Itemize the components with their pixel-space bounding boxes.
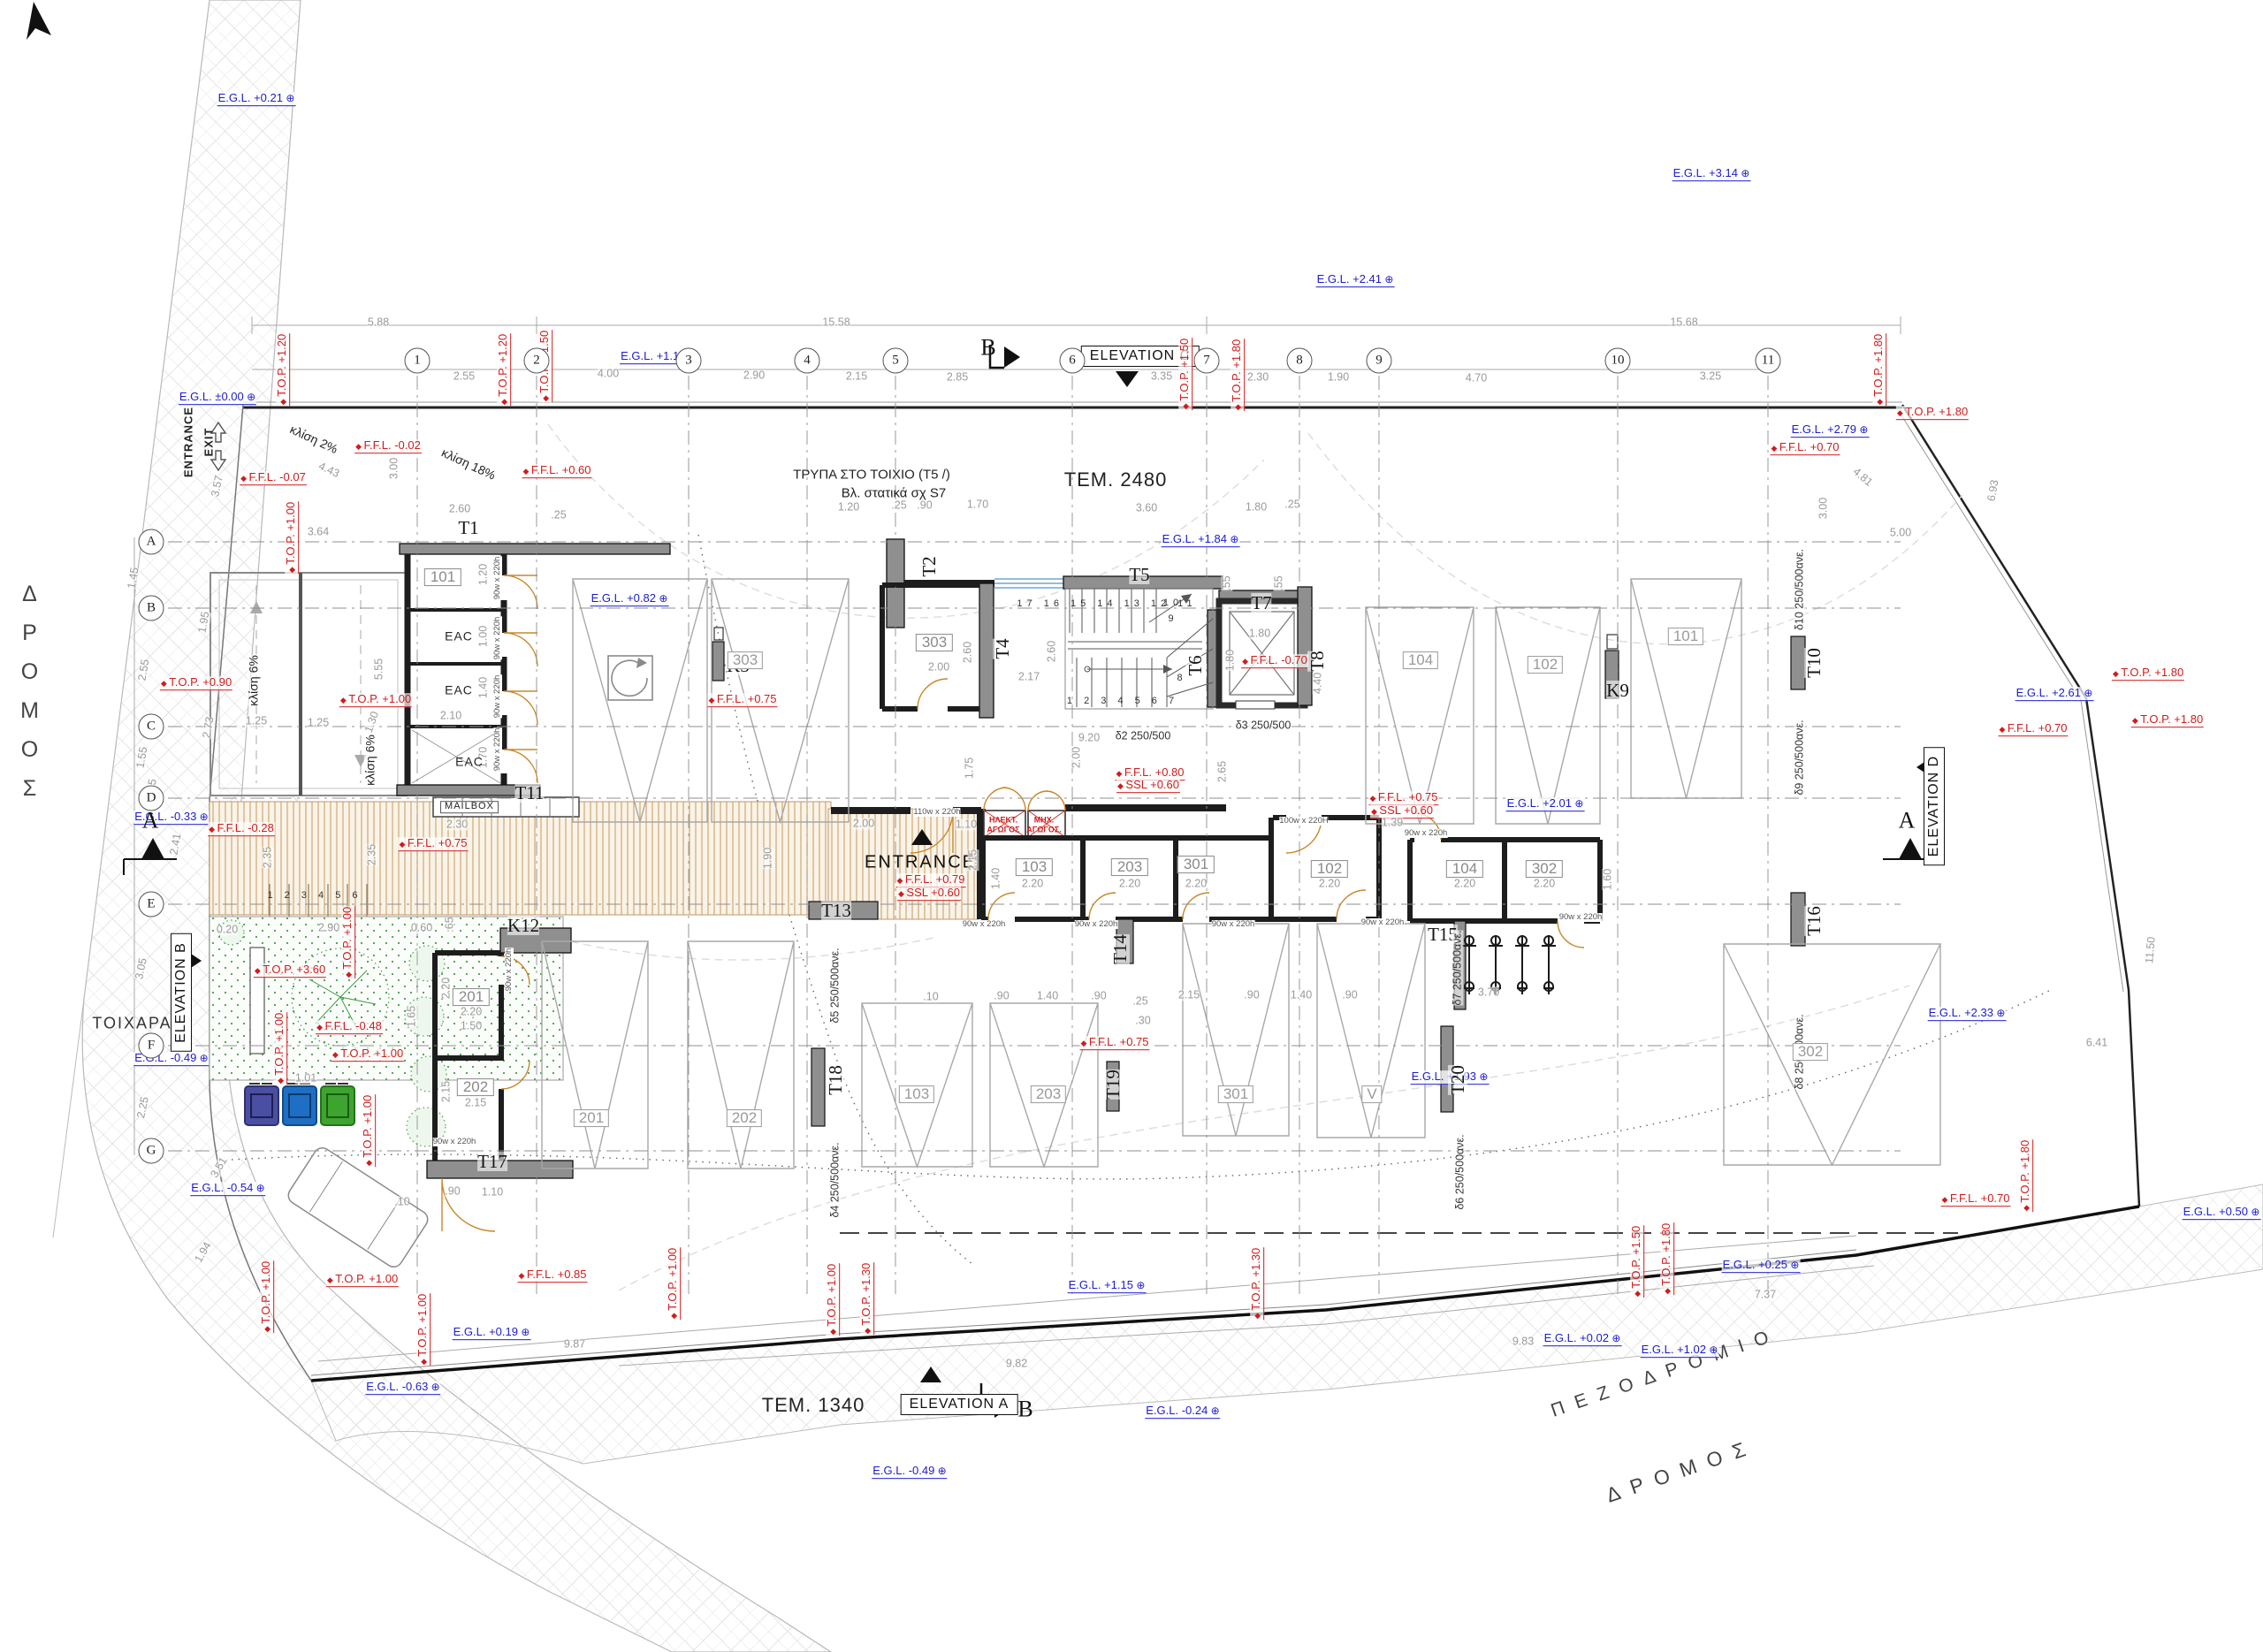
dimension-label: 15.68: [1670, 316, 1697, 328]
exit-vertical-label: EXIT: [202, 428, 216, 457]
beam-label: δ9 250/500ανε.: [1794, 719, 1805, 795]
wall-column-label: T18: [826, 1065, 845, 1095]
door-size-label: 90w x 220h: [1075, 920, 1118, 929]
step-numbers: 8: [1177, 674, 1186, 684]
parking-number: 303: [728, 651, 763, 669]
egl-level-label: E.G.L. +1.02: [1641, 1344, 1719, 1358]
door-size-label: 90w x 220h: [963, 920, 1006, 929]
beam-label: δ3 250/500: [1236, 719, 1292, 731]
door-size-label: 90w x 220h: [505, 948, 514, 992]
dimension-label: 4.40: [1312, 673, 1323, 694]
level-label: T.O.P. +1.00: [826, 1263, 840, 1336]
grid-column-bubble: 8: [1287, 348, 1313, 374]
dimension-label: 2.20: [1319, 878, 1340, 889]
level-label: F.F.L. -0.02: [354, 439, 422, 453]
beam-label: δ2 250/500: [1116, 730, 1171, 742]
egl-level-label: E.G.L. +0.21: [217, 92, 296, 106]
dimension-label: 3.64: [308, 526, 329, 537]
turning-icon: [608, 656, 652, 700]
egl-level-label: E.G.L. -0.63: [365, 1381, 440, 1395]
level-label: T.O.P. +1.80: [2131, 713, 2204, 727]
room-number: 101: [424, 568, 461, 586]
dimension-label: 1.90: [1328, 371, 1349, 383]
dimension-label: 1.50: [461, 1020, 482, 1032]
duct-label: ΑΓΩΓΟΣ: [987, 826, 1020, 834]
level-label: T.O.P. +0.90: [160, 676, 232, 690]
step-numbers: 9: [1168, 614, 1177, 625]
egl-level-label: E.G.L. +0.82: [591, 592, 669, 606]
dimension-label: .25: [891, 499, 906, 511]
level-label: F.F.L. +0.60: [522, 464, 592, 478]
door-size-label: 100w x 220H: [1279, 817, 1328, 826]
dimension-label: 4.70: [1466, 372, 1487, 384]
dimension-label: .10: [923, 991, 938, 1002]
level-label: T.O.P. +1.00: [339, 693, 412, 707]
dimension-label: 3.70: [1478, 986, 1499, 998]
egl-level-label: E.G.L. +2.41: [1316, 273, 1395, 287]
dimension-label: 2.00: [853, 818, 874, 829]
dimension-label: 2.15: [1178, 989, 1200, 1001]
grid-row-bubble: A: [139, 529, 164, 555]
parking-space: [1183, 924, 1289, 1136]
door-size-label: 90w x 220h: [1212, 920, 1255, 929]
level-label: SSL +0.60: [897, 887, 961, 901]
dimension-label: 2.85: [947, 371, 968, 383]
dimension-label: 1.65: [406, 1006, 417, 1027]
dimension-label: 9.83: [1512, 1336, 1534, 1347]
wall-column-label: T20: [1448, 1065, 1467, 1095]
egl-level-label: E.G.L. +1.84: [1162, 533, 1240, 547]
parking-number: 102: [1528, 656, 1563, 674]
dimension-label: .25: [1284, 499, 1299, 510]
dimension-label: 6.41: [2086, 1037, 2107, 1048]
eac-room-label: EAC: [445, 684, 473, 697]
wall-column-label: T11: [514, 783, 544, 803]
north-arrow: [27, 2, 51, 40]
dimension-label: 3.35: [1151, 370, 1172, 382]
duct-label: ΗΛΕΚΤ.: [989, 816, 1017, 824]
level-label: T.O.P. +1.00: [667, 1247, 681, 1320]
section-letter: B: [980, 335, 995, 359]
dimension-label: 3.25: [1700, 370, 1721, 382]
egl-level-label: E.G.L. +0.02: [1543, 1332, 1622, 1346]
dimension-label: 1.90: [762, 848, 773, 869]
dimension-label: 0.60: [411, 922, 432, 933]
door-size-label: 90w x 220h: [493, 675, 502, 719]
dimension-label: .90: [917, 499, 932, 511]
level-label: T.O.P. +3.60: [254, 963, 326, 978]
dimension-label: 4.00: [598, 368, 619, 379]
level-label: F.F.L. +0.85: [518, 1268, 588, 1283]
grid-row-bubble: D: [139, 786, 164, 811]
parking-number: 104: [1403, 651, 1438, 669]
dimension-label: 11.50: [2144, 936, 2158, 963]
dimension-label: 2.17: [1018, 671, 1040, 682]
dimension-label: 1.80: [1249, 628, 1270, 639]
room-number: 202: [457, 1078, 494, 1096]
dimension-label: 2.60: [449, 503, 470, 514]
level-label: F.F.L. +0.70: [1771, 441, 1840, 455]
plot-number-bottom: ΤΕΜ. 1340: [762, 1394, 865, 1417]
wall-column-label: T5: [1129, 565, 1149, 584]
level-label: F.F.L. -0.70: [1241, 654, 1308, 668]
level-label: T.O.P. +1.20: [276, 333, 290, 406]
door-size-label: 90w x 220h: [433, 1138, 476, 1146]
dimension-label: .30: [1135, 1015, 1150, 1026]
dimension-label: 2.35: [366, 844, 377, 865]
duct-label: ΜΗΧ.: [1034, 816, 1055, 824]
waste-bins: [245, 1084, 354, 1125]
dimension-label: 2.15: [440, 1081, 452, 1102]
level-label: F.F.L. +0.75: [708, 693, 778, 707]
dimension-label: .90: [1091, 990, 1106, 1001]
room-number: 302: [1526, 860, 1563, 878]
grid-column-bubble: 4: [795, 348, 820, 374]
beam-label: δ6 250/500ανε.: [1454, 1134, 1466, 1209]
step-numbers: 1 2 3 4 5 6 7: [1067, 697, 1178, 707]
dimension-label: 9.20: [1078, 732, 1100, 743]
wall-column-label: T8: [1307, 651, 1327, 671]
mailbox-label: MAILBOX: [440, 801, 499, 813]
dimension-label: .10: [394, 1196, 409, 1207]
door-size-label: 90w x 220h: [493, 728, 502, 772]
egl-level-label: E.G.L. +2.79: [1791, 423, 1870, 438]
egl-level-label: E.G.L. -0.54: [190, 1182, 265, 1196]
level-label: T.O.P. +1.50: [1630, 1225, 1644, 1298]
room-number: 102: [1311, 860, 1348, 878]
egl-level-label: E.G.L. +3.14: [1672, 167, 1751, 181]
dimension-label: .25: [1132, 995, 1147, 1007]
parking-number: 103: [899, 1085, 934, 1103]
dimension-label: 1.10: [482, 1186, 503, 1198]
dimension-label: 1.01: [295, 1072, 316, 1084]
room-number: 104: [1446, 860, 1483, 878]
level-label: F.F.L. +0.75: [1080, 1036, 1150, 1050]
dimension-label: 2.20: [440, 978, 452, 999]
grid-column-bubble: 11: [1756, 348, 1781, 374]
level-label: T.O.P. +1.80: [2112, 666, 2184, 681]
dimension-label: 2.90: [743, 369, 765, 381]
dimension-label: 2.10: [440, 710, 461, 721]
door-size-label: 90w x 220h: [493, 617, 502, 660]
dimension-label: 2.60: [1046, 641, 1057, 662]
dimension-label: 1.70: [967, 499, 988, 510]
grid-row-bubble: F: [139, 1033, 164, 1059]
wall-column-label: T10: [1804, 648, 1824, 678]
dimension-label: 1.40: [990, 868, 1002, 889]
egl-level-label: E.G.L. +2.01: [1506, 797, 1585, 811]
dimension-label: 3.00: [388, 458, 400, 479]
dimension-label: 9.87: [564, 1338, 585, 1350]
grid-column-bubble: 6: [1060, 348, 1086, 374]
grid-column-bubble: 10: [1605, 348, 1631, 374]
grid-row-bubble: B: [139, 596, 164, 621]
dimension-label: .90: [1342, 989, 1357, 1001]
level-label: T.O.P. +1.20: [497, 333, 511, 406]
wall-column-label: K12: [507, 916, 539, 935]
beam-label: δ5 250/500ανε.: [829, 948, 841, 1023]
dimension-label: 2.15: [846, 370, 867, 382]
egl-level-label: E.G.L. ±0.00: [179, 391, 256, 405]
dimension-label: 2.00: [1071, 747, 1082, 768]
level-label: F.F.L. +0.75: [399, 837, 469, 851]
door-size-label: 90w x 220h: [1405, 829, 1448, 838]
dimension-label: 2.90: [318, 922, 339, 933]
eac-room-label: EAC: [445, 630, 473, 643]
dimension-label: 1.25: [246, 715, 267, 727]
section-letter: A: [1899, 808, 1916, 832]
egl-level-label: E.G.L. +0.50: [2183, 1206, 2261, 1220]
room-number: 201: [453, 988, 490, 1006]
dimension-label: 2.30: [1247, 371, 1269, 383]
dimension-label: 1.20: [477, 564, 489, 585]
level-label: T.O.P. +1.00: [341, 906, 355, 978]
dimension-label: 7.37: [1755, 1289, 1776, 1300]
parking-number: 301: [1218, 1085, 1253, 1103]
level-label: T.O.P. +1.00: [416, 1293, 431, 1366]
dimension-label: .25: [551, 509, 566, 521]
dimension-label: 5.00: [1890, 527, 1911, 538]
dimension-label: .90: [1244, 989, 1259, 1001]
dimension-label: 2.15: [465, 1097, 486, 1108]
dimension-label: 2.20: [1185, 878, 1207, 889]
level-label: T.O.P. +1.00: [326, 1273, 399, 1287]
dimension-label: 2.20: [1454, 878, 1475, 889]
level-label: T.O.P. +1.80: [1660, 1222, 1674, 1295]
dimension-label: 2.20: [1119, 878, 1140, 889]
egl-level-label: E.G.L. +0.19: [453, 1326, 531, 1340]
parking-number: 203: [1031, 1085, 1066, 1103]
grid-row-bubble: G: [139, 1138, 164, 1164]
dimension-label: .90: [445, 1185, 460, 1197]
parking-number: 302: [1793, 1043, 1828, 1061]
wall-column-label: T17: [477, 1152, 507, 1171]
dimension-label: .65: [444, 917, 455, 932]
level-label: T.O.P. +1.80: [1896, 406, 1969, 420]
duct-label: ΑΓΩΓΟΣ.: [1026, 826, 1061, 834]
beam-label: δ4 250/500ανε.: [829, 1142, 841, 1217]
parking-number: 202: [727, 1109, 762, 1127]
floor-plan-sheet: ΤΕΜ. 2480 ΤΕΜ. 1340 ΔΡΟΜΟΣ ΠΕΖΟΔΡΟΜΙΟ ΔΡ…: [0, 0, 2263, 1652]
elevation-b-label: ELEVATION B: [171, 933, 192, 1052]
road-label-left: ΔΡΟΜΟΣ: [17, 582, 42, 815]
grid-column-bubble: 1: [405, 348, 431, 374]
parking-number: 101: [1668, 628, 1703, 645]
level-label: T.O.P. +1.50: [1178, 338, 1192, 410]
dimension-label: .90: [994, 990, 1009, 1001]
parking-space: [1631, 579, 1741, 798]
room-number: 103: [1016, 858, 1053, 876]
grid-row-bubble: C: [139, 714, 164, 740]
wall-column-label: T16: [1804, 906, 1824, 936]
parking-space: [1724, 944, 1940, 1165]
dimension-label: 1.80: [1246, 501, 1267, 513]
elevation-d-label: ELEVATION D: [1924, 747, 1945, 865]
wall-column-label: T7: [1251, 593, 1271, 613]
grid-column-bubble: 2: [524, 348, 550, 374]
level-label: T.O.P. +1.00: [285, 501, 299, 574]
level-label: T.O.P. +1.80: [1872, 333, 1886, 406]
wall-column-label: T14: [1110, 934, 1130, 964]
wall-column-label: T4: [993, 638, 1012, 659]
room-number: 203: [1111, 858, 1148, 876]
dimension-label: 1.39: [1382, 817, 1403, 828]
level-label: T.O.P. +1.00: [273, 1012, 287, 1085]
grid-column-bubble: 5: [883, 348, 909, 374]
dimension-label: 1.40: [477, 677, 489, 698]
level-label: F.F.L. +0.70: [1999, 722, 2069, 736]
egl-level-label: E.G.L. +1.15: [1068, 1279, 1147, 1293]
dimension-label: 1.20: [838, 501, 859, 513]
parking-number: V: [1361, 1085, 1382, 1103]
dimension-label: 0.20: [217, 924, 238, 935]
beam-label: δ10 250/500ανε.: [1794, 549, 1805, 630]
wall-column-label: T13: [821, 901, 851, 920]
level-label: T.O.P. +1.30: [1250, 1247, 1264, 1320]
step-numbers: 1 2 3 4 5 6: [268, 891, 362, 902]
dimension-label: .55: [1221, 575, 1232, 590]
egl-level-label: E.G.L. -0.49: [872, 1465, 947, 1479]
slope-note: κλίση 6%: [248, 655, 261, 706]
dimension-label: 1.40: [1291, 989, 1312, 1001]
grid-row-bubble: E: [139, 892, 164, 917]
wall-column-label: T1: [458, 518, 478, 537]
parking-space: [1496, 607, 1600, 824]
dimension-label: 2.00: [928, 661, 949, 673]
level-label: T.O.P. +1.00: [362, 1094, 376, 1167]
dimension-label: 1.00: [477, 626, 489, 647]
grid-column-bubble: 9: [1367, 348, 1392, 374]
dimension-label: 2.20: [1022, 878, 1043, 889]
dimension-label: .55: [1273, 575, 1284, 590]
parking-space: [688, 941, 794, 1169]
dimension-label: 2.20: [461, 1006, 482, 1017]
dimension-label: 2.30: [446, 818, 468, 830]
dimension-label: 1.25: [308, 717, 329, 728]
wall-column-label: K9: [1606, 681, 1629, 700]
dimension-label: 5.55: [373, 659, 385, 680]
egl-level-label: E.G.L. -0.24: [1145, 1405, 1220, 1419]
parking-space: [1317, 924, 1425, 1138]
dimension-label: 2.55: [453, 370, 475, 382]
egl-level-label: E.G.L. +2.61: [2015, 687, 2094, 701]
level-label: F.F.L. +0.70: [1941, 1192, 2011, 1207]
level-label: T.O.P. +1.80: [1231, 339, 1245, 411]
level-label: T.O.P. +1.00: [331, 1047, 404, 1062]
dimension-label: 1.40: [1037, 990, 1058, 1001]
step-numbers: 10: [1163, 598, 1183, 609]
dimension-label: 1.10: [956, 818, 977, 830]
wall-column-label: T19: [1103, 1070, 1123, 1100]
section-letter: B: [1017, 1397, 1032, 1420]
egl-level-label: E.G.L. +0.25: [1722, 1259, 1801, 1273]
level-label: T.O.P. +1.30: [860, 1262, 874, 1335]
dimension-label: 2.60: [962, 642, 973, 663]
wall-column-label: T2: [919, 556, 939, 576]
dimension-label: 2.20: [1534, 878, 1555, 889]
motorbike-icons: [1462, 935, 1556, 994]
dimension-label: 5.88: [368, 316, 389, 328]
level-label: T.O.P. +1.00: [260, 1260, 274, 1333]
grid-column-bubble: 7: [1194, 348, 1220, 374]
elevation-a-label: ELEVATION A: [901, 1394, 1018, 1415]
dimension-label: 9.82: [1006, 1358, 1027, 1369]
dimension-label: 3.00: [1817, 498, 1829, 519]
level-label: F.F.L. -0.28: [208, 822, 275, 836]
door-size-label: 90w x 220h: [1559, 913, 1603, 922]
dimension-label: 2.15: [967, 849, 979, 871]
dimension-label: 1.80: [1224, 650, 1236, 671]
room-number: 301: [1177, 856, 1215, 873]
plot-number-top: ΤΕΜ. 2480: [1064, 468, 1168, 491]
door-size-label: 110w x 220h: [913, 808, 960, 817]
entrance-vertical-label: ENTRANCE: [182, 407, 195, 477]
slope-note: κλίση 6%: [364, 735, 377, 786]
section-letter: A: [142, 808, 159, 832]
dimension-label: 2.35: [262, 847, 273, 868]
wall-hole-note-line1: ΤΡΥΠΑ ΣΤΟ ΤΟΙΧΙΟ (Τ5 /): [793, 468, 950, 483]
parking-number: 201: [574, 1109, 609, 1127]
grid-column-bubble: 3: [676, 348, 702, 374]
door-size-label: 90w x 220h: [493, 557, 502, 600]
wall-column-label: T6: [1185, 655, 1205, 675]
beam-label: δ7 250/500ανε.: [1452, 930, 1463, 1005]
dimension-label: 1.60: [1602, 869, 1613, 890]
egl-level-label: E.G.L. +2.33: [1928, 1007, 2007, 1021]
main-entrance-label: ENTRANCE: [865, 853, 976, 873]
dimension-label: 15.58: [822, 316, 850, 328]
level-label: F.F.L. -0.48: [316, 1020, 383, 1034]
dimension-label: 2.65: [1216, 761, 1228, 782]
dimension-label: 3.60: [1136, 502, 1157, 514]
eac-room-label: EAC: [455, 756, 484, 769]
level-label: T.O.P. +1.80: [2019, 1139, 2033, 1212]
dimension-label: 1.75: [964, 757, 975, 779]
level-label: SSL +0.60: [1116, 779, 1180, 793]
level-label: F.F.L. -0.07: [240, 471, 307, 485]
door-size-label: 90w x 220h: [1361, 918, 1405, 927]
room-number: 303: [916, 634, 953, 651]
